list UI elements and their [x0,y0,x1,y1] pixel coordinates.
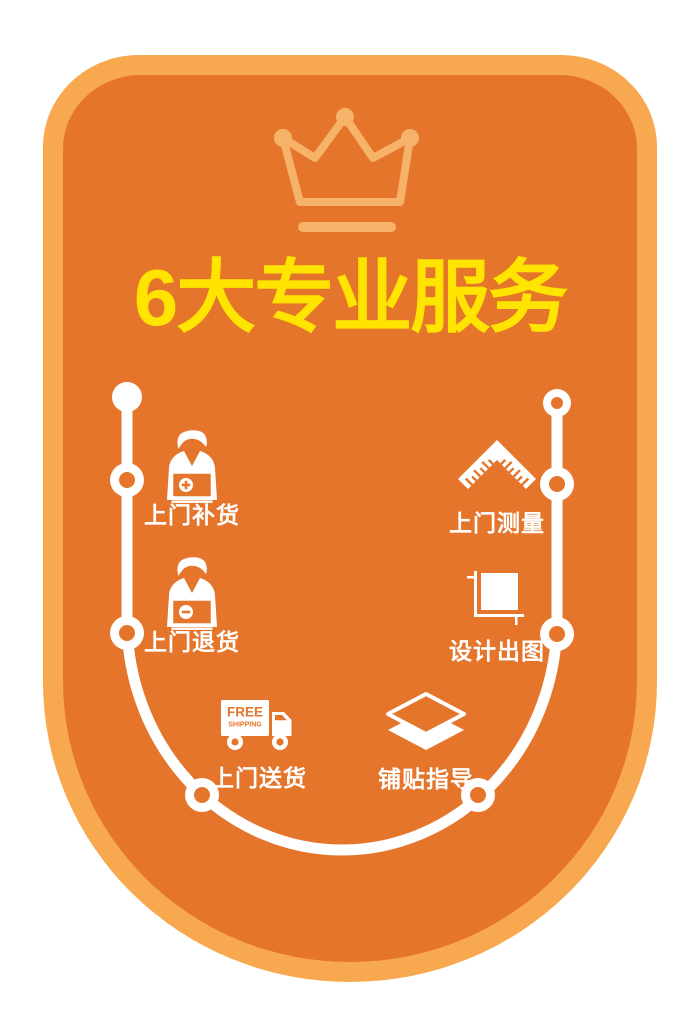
service-label: 上门测量 [449,504,545,538]
crown-right-ball [401,129,419,147]
crown-left-ball [274,129,292,147]
axis-tick [467,576,474,579]
drawing-square [481,573,518,610]
service-item-tiling: 铺贴指导 [356,690,496,794]
crown-middle-ball [336,108,354,126]
service-label: 上门送货 [211,759,307,793]
service-label: 上门退货 [144,623,240,657]
drawing-plot-icon [467,565,527,627]
free-text: FREE [227,705,263,720]
service-item-restock: 上门补货 [122,426,262,530]
service-label: 上门补货 [144,496,240,530]
axis-tick [515,617,518,625]
service-item-measure: 上门测量 [427,435,567,538]
service-item-delivery: FREE SHIPPING 上门送货 [189,697,329,793]
page-title: 6大专业服务 [0,248,700,348]
person-hair [177,430,206,449]
shipping-text: SHIPPING [228,722,262,729]
person-box-plus-icon [157,426,227,504]
delivery-truck-icon: FREE SHIPPING [220,697,298,751]
stacked-tiles-icon [382,690,470,756]
service-item-return: 上门退货 [122,553,262,657]
person-box-minus-icon [157,553,227,631]
angle-ruler-icon [452,435,542,499]
horizontal-axis [474,614,524,617]
person-hair [177,557,206,576]
crown-outline [283,117,410,202]
vertical-axis [474,571,477,617]
crown-icon [270,95,430,245]
service-item-design: 设计出图 [427,565,567,666]
service-label: 铺贴指导 [378,760,474,794]
service-label: 设计出图 [449,632,545,666]
poster: 6大专业服务 [0,0,700,1024]
